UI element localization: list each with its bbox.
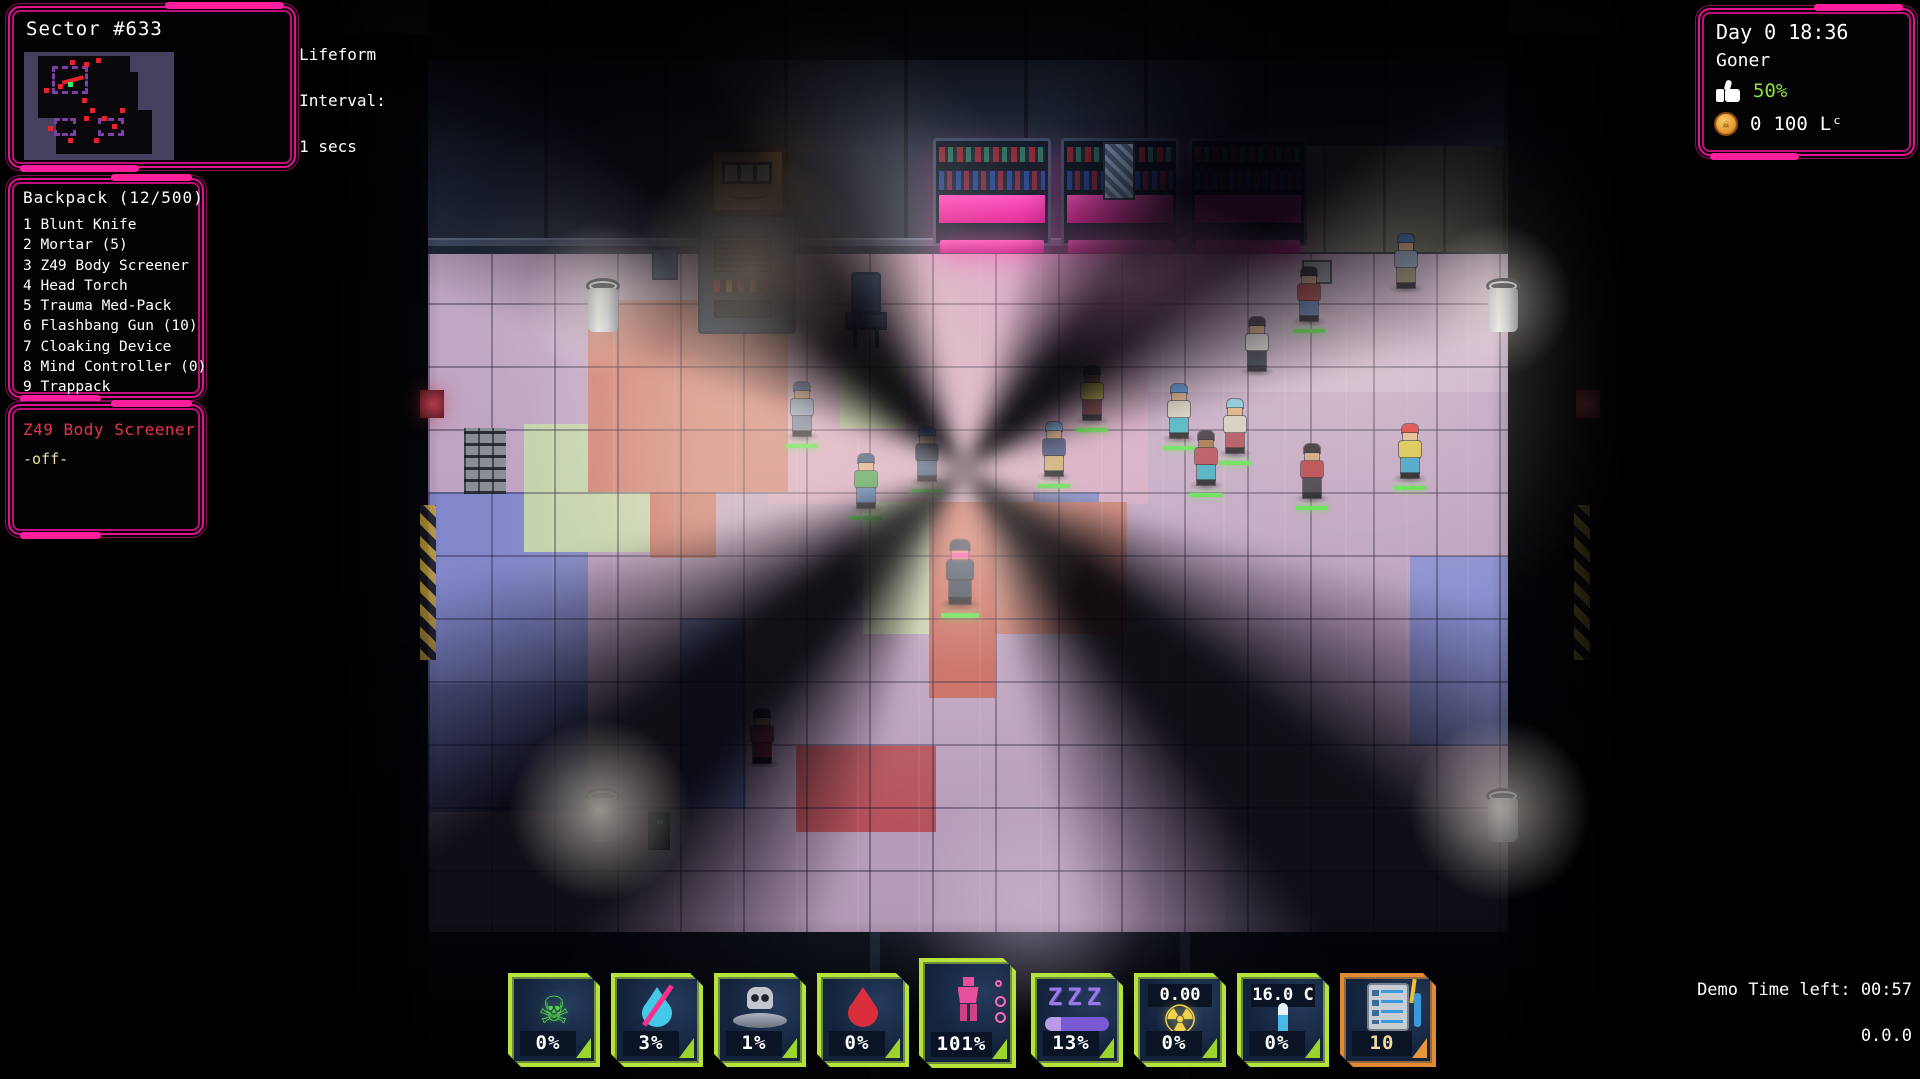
coin-icon: ☠ <box>1714 112 1738 136</box>
toxin-skull-icon: ☠ <box>540 984 568 1030</box>
lifeform-interval: Lifeform Interval: 1 secs <box>222 20 386 181</box>
gauge-radiation[interactable]: 0.00 ☢ 0% <box>1134 973 1226 1067</box>
npc[interactable] <box>1222 399 1248 455</box>
npc[interactable] <box>853 454 879 510</box>
npc[interactable] <box>1296 267 1322 323</box>
backpack-item[interactable]: 8 Mind Controller (0) <box>23 357 196 377</box>
npc[interactable] <box>914 427 940 483</box>
npc[interactable] <box>1397 424 1423 480</box>
player-name: Goner <box>1716 50 1770 71</box>
player-character[interactable] <box>945 540 976 606</box>
gauge-thirst[interactable]: 3% <box>611 973 703 1067</box>
hunger-skull-plate-icon <box>733 987 787 1028</box>
hunger-value: 1% <box>726 1031 782 1056</box>
sector-panel: Sector #633 Lifeform Interva <box>8 6 296 168</box>
tasks-value: 10 <box>1352 1031 1412 1056</box>
sector-title: Sector #633 <box>26 18 163 40</box>
gauge-tasks[interactable]: 10 <box>1340 973 1436 1067</box>
thirst-drop-icon <box>642 987 672 1027</box>
blood-value: 0% <box>829 1031 885 1056</box>
approval-row: 50% <box>1716 78 1787 104</box>
minimap-room <box>54 118 76 136</box>
temperature-value: 0% <box>1249 1031 1305 1056</box>
checklist-icon <box>1367 983 1409 1031</box>
money-row: ☠ 0 100 Lᶜ <box>1714 112 1843 136</box>
equipped-item-state: -off- <box>23 450 68 468</box>
npc[interactable] <box>1166 384 1192 440</box>
backpack-item[interactable]: 4 Head Torch <box>23 276 196 296</box>
toxin-value: 0% <box>520 1031 576 1056</box>
version-number: 0.0.0 <box>1861 1026 1912 1046</box>
npc[interactable] <box>1393 234 1419 290</box>
backpack-panel: Backpack (12/500) 1 Blunt Knife2 Mortar … <box>8 178 204 398</box>
credits-value: 100 <box>1773 113 1807 135</box>
backpack-item[interactable]: 1 Blunt Knife <box>23 215 196 235</box>
equipped-item-panel: Z49 Body Screener -off- <box>8 404 204 535</box>
gauge-blood[interactable]: 0% <box>817 973 909 1067</box>
backpack-item[interactable]: 7 Cloaking Device <box>23 337 196 357</box>
coin-count: 0 <box>1750 113 1761 135</box>
demo-time-left: Demo Time left: 00:57 <box>1697 980 1912 1000</box>
status-panel: Day 0 18:36 Goner 50% ☠ 0 100 Lᶜ <box>1698 8 1915 156</box>
gauge-hunger[interactable]: 1% <box>714 973 806 1067</box>
npc[interactable] <box>1079 366 1105 422</box>
game-screen: Sector #633 Lifeform Interva <box>0 0 1920 1079</box>
minimap-player-dot <box>68 82 73 87</box>
minimap[interactable] <box>24 52 174 160</box>
npc[interactable] <box>1193 431 1219 487</box>
body-figure-icon <box>953 977 983 1023</box>
npc[interactable] <box>749 709 775 765</box>
gauge-temperature[interactable]: 16.0 C 0% <box>1237 973 1329 1067</box>
backpack-list: 1 Blunt Knife2 Mortar (5)3 Z49 Body Scre… <box>23 215 196 398</box>
backpack-title: Backpack (12/500) <box>23 188 204 207</box>
gauge-toxin[interactable]: ☠ 0% <box>508 973 600 1067</box>
backpack-item[interactable]: 6 Flashbang Gun (10) <box>23 316 196 336</box>
demo-timer: Demo Time left: 00:57 0.0.0 <box>1636 956 1912 1071</box>
body-value: 101% <box>931 1032 992 1057</box>
backpack-item[interactable]: 9 Trappack <box>23 377 196 397</box>
backpack-item[interactable]: 5 Trauma Med-Pack <box>23 296 196 316</box>
gauge-body[interactable]: 101% <box>919 958 1016 1068</box>
npc[interactable] <box>1299 444 1325 500</box>
thermometer-icon <box>1272 1003 1294 1031</box>
thirst-value: 3% <box>623 1031 679 1056</box>
npc[interactable] <box>1244 317 1270 373</box>
body-status-dots <box>995 980 1002 987</box>
pillow-icon <box>1045 1017 1109 1031</box>
sleep-zzz-icon: ZZZ <box>1048 983 1106 1011</box>
npc[interactable] <box>1041 422 1067 478</box>
sleep-value: 13% <box>1043 1031 1099 1056</box>
approval-value: 50% <box>1753 80 1787 102</box>
day-time: Day 0 18:36 <box>1716 20 1848 44</box>
radiation-value: 0% <box>1146 1031 1202 1056</box>
equipped-item-name: Z49 Body Screener <box>23 420 195 439</box>
backpack-item[interactable]: 2 Mortar (5) <box>23 235 196 255</box>
currency-symbol: Lᶜ <box>1820 113 1843 135</box>
thumbs-up-icon <box>1716 80 1743 103</box>
backpack-item[interactable]: 3 Z49 Body Screener <box>23 256 196 276</box>
npc[interactable] <box>789 382 815 438</box>
gauge-sleep[interactable]: ZZZ 13% <box>1031 973 1123 1067</box>
blood-drop-icon <box>848 987 878 1027</box>
